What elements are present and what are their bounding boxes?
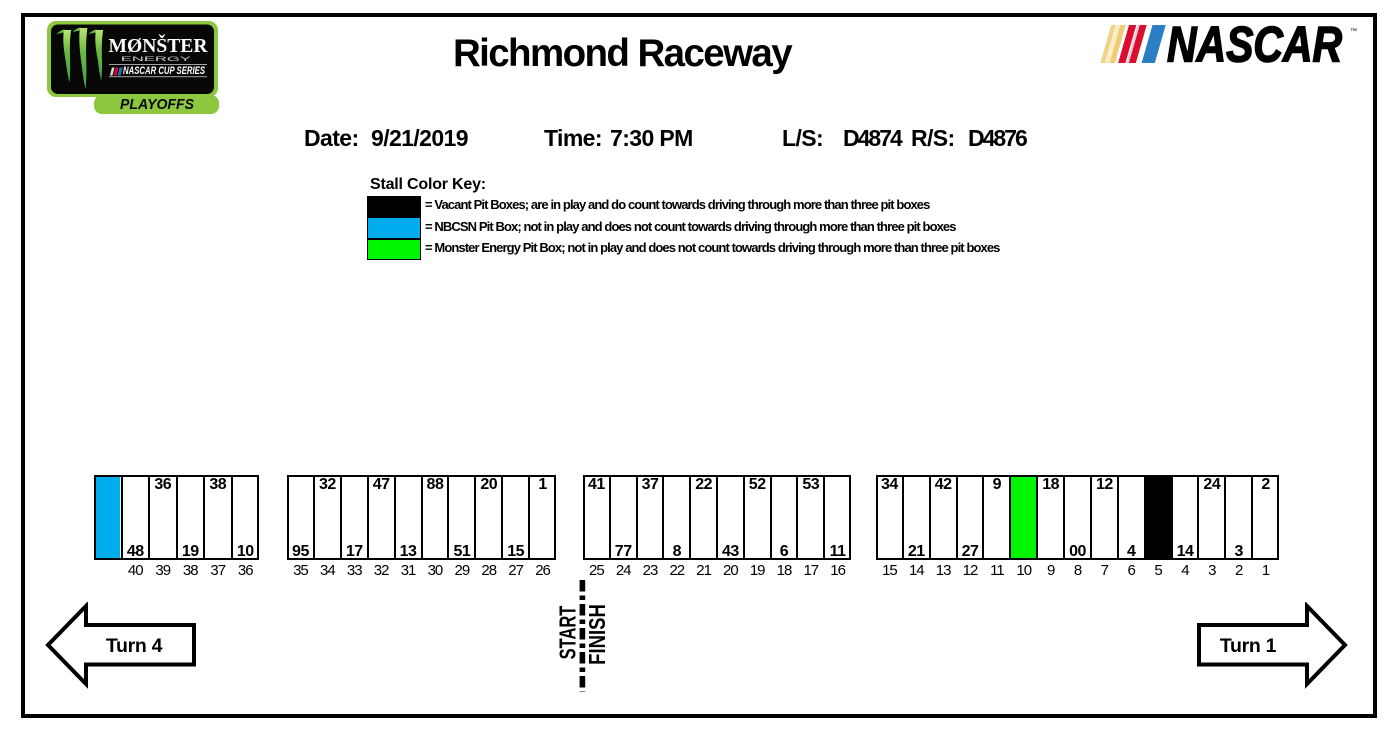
- svg-text:PLAYOFFS: PLAYOFFS: [120, 97, 194, 113]
- svg-text:™: ™: [1350, 28, 1357, 35]
- svg-text:NASCAR: NASCAR: [1167, 24, 1342, 66]
- svg-text:NASCAR CUP SERIES: NASCAR CUP SERIES: [123, 65, 205, 77]
- svg-text:MØNŠTER: MØNŠTER: [109, 33, 209, 57]
- svg-text:ENERGY: ENERGY: [121, 57, 191, 63]
- svg-text:Turn 1: Turn 1: [1220, 635, 1277, 657]
- svg-text:Turn 4: Turn 4: [106, 635, 163, 657]
